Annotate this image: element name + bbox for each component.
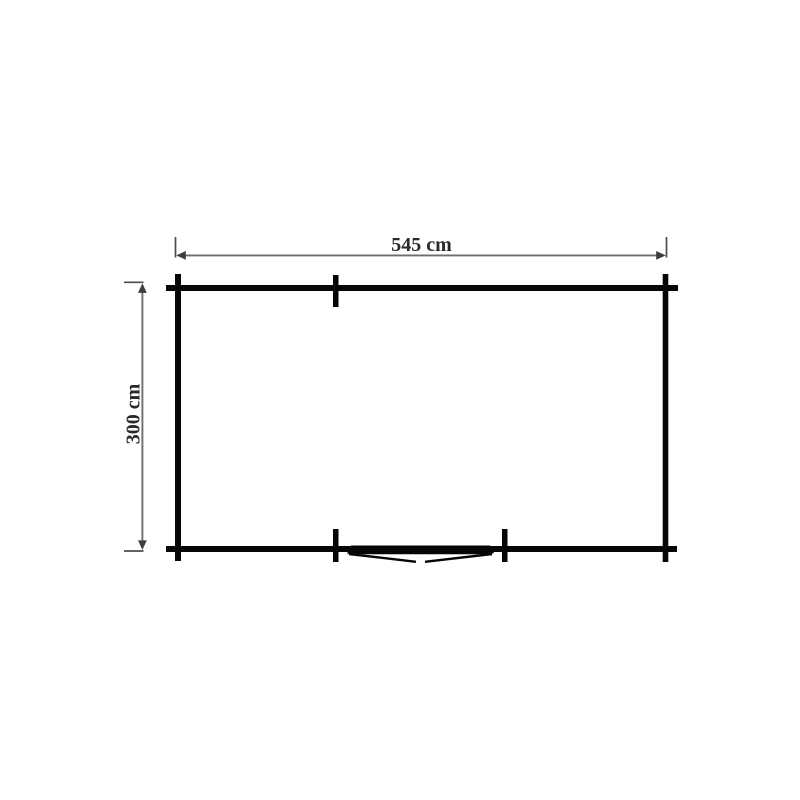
svg-text:545 cm: 545 cm <box>391 234 452 256</box>
svg-text:300 cm: 300 cm <box>123 383 145 444</box>
